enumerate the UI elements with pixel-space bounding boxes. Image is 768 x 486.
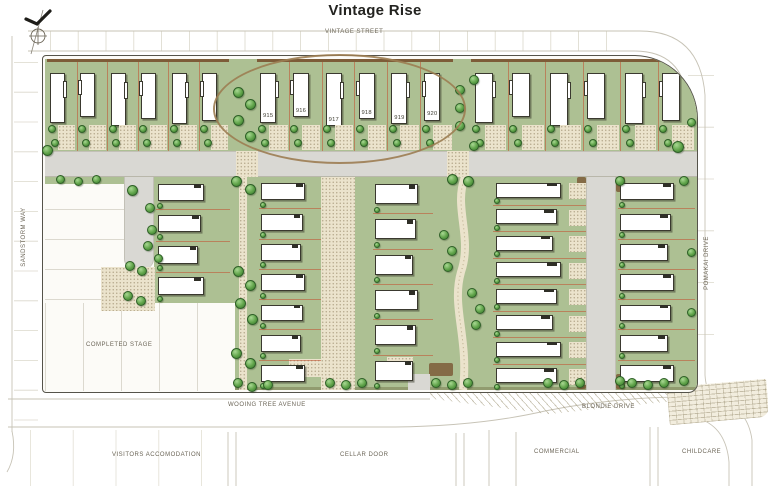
column-east	[618, 179, 695, 390]
tree	[664, 139, 672, 147]
commercial-label: COMMERCIAL	[534, 449, 580, 455]
tree	[157, 265, 163, 271]
house-footprint	[512, 73, 530, 118]
lot	[156, 241, 230, 272]
driveway	[150, 125, 167, 150]
tree	[173, 139, 181, 147]
lot	[156, 272, 230, 303]
lot	[508, 62, 546, 151]
driveway	[119, 125, 136, 150]
tree	[494, 304, 500, 310]
vintage-rise-site-plan: 915916917918919920 Vintage Rise VINTAGE …	[0, 0, 768, 486]
tree	[260, 353, 266, 359]
tree	[143, 139, 151, 147]
tree	[619, 383, 625, 389]
entry-notch	[409, 184, 416, 189]
tree	[619, 262, 625, 268]
lot	[493, 205, 586, 232]
tree	[82, 139, 90, 147]
tree	[204, 139, 212, 147]
driveway	[58, 125, 75, 150]
house-step	[492, 81, 497, 97]
house-footprint	[620, 244, 668, 261]
entry-notch	[294, 305, 300, 309]
entry-notch	[296, 183, 303, 187]
lot	[620, 62, 658, 151]
wooing-tree-avenue-label: WOOING TREE AVENUE	[228, 402, 306, 408]
lot	[493, 231, 586, 258]
tree	[622, 125, 630, 133]
tree	[170, 125, 178, 133]
tree	[200, 125, 208, 133]
blondie-drive-label: BLONDIE DRIVE	[582, 404, 635, 410]
house-footprint	[496, 289, 557, 304]
entry-notch	[544, 368, 554, 371]
entry-notch	[294, 214, 300, 218]
driveway	[569, 342, 586, 358]
house-step	[139, 81, 143, 96]
completed-stage-label: COMPLETED STAGE	[86, 342, 152, 348]
house-footprint	[141, 73, 156, 119]
entry-notch	[192, 215, 199, 219]
entry-notch	[544, 289, 554, 292]
tree	[157, 234, 163, 240]
north-arrow-icon	[22, 6, 58, 56]
driveway	[672, 125, 693, 150]
tree	[514, 139, 522, 147]
house-footprint	[496, 342, 561, 357]
entry-notch	[194, 277, 201, 281]
tree	[112, 139, 120, 147]
house-footprint	[496, 183, 561, 198]
lot	[493, 284, 586, 311]
house-step	[567, 82, 572, 99]
tree	[374, 207, 380, 213]
entry-notch	[409, 290, 416, 295]
entry-notch	[547, 342, 557, 345]
tree	[260, 323, 266, 329]
tree	[509, 125, 517, 133]
column-lane-east	[259, 179, 321, 390]
lot	[618, 239, 695, 269]
house-footprint	[80, 73, 95, 118]
tree	[109, 125, 117, 133]
house-footprint	[261, 244, 301, 261]
tree	[494, 278, 500, 284]
tree	[139, 125, 147, 133]
childcare-label: CHILDCARE	[682, 449, 721, 455]
sandstorm-way-label: SANDSTORM WAY	[21, 207, 27, 266]
lot	[493, 311, 586, 338]
entry-notch	[190, 246, 196, 250]
driveway	[635, 125, 656, 150]
entry-notch	[292, 244, 298, 248]
tree	[619, 232, 625, 238]
entry-notch	[407, 219, 413, 224]
house-footprint	[158, 246, 198, 264]
tree	[260, 202, 266, 208]
house-footprint	[158, 184, 204, 202]
vintage-street-label: VINTAGE STREET	[325, 29, 383, 35]
house-footprint	[375, 219, 416, 239]
tree	[619, 293, 625, 299]
lot	[259, 208, 321, 238]
lot	[138, 62, 169, 151]
tree	[547, 125, 555, 133]
lot	[493, 337, 586, 364]
entry-notch	[296, 365, 303, 369]
tree	[78, 125, 86, 133]
house-footprint	[261, 335, 301, 352]
lot	[77, 62, 108, 151]
house-footprint	[261, 365, 306, 382]
house-footprint	[375, 325, 416, 345]
lot	[373, 319, 433, 354]
lot	[545, 62, 583, 151]
house-footprint	[662, 73, 680, 121]
tree	[374, 348, 380, 354]
house-footprint	[158, 277, 204, 295]
tree	[494, 198, 500, 204]
page-title: Vintage Rise	[287, 2, 463, 19]
tree	[494, 251, 500, 257]
house-footprint	[496, 262, 561, 277]
house-footprint	[111, 73, 126, 126]
lot	[168, 62, 199, 151]
entry-notch	[405, 361, 411, 366]
driveway	[569, 236, 586, 252]
house-footprint	[496, 315, 554, 330]
tree	[619, 202, 625, 208]
entry-notch	[547, 183, 557, 186]
entry-notch	[547, 262, 557, 265]
lot	[373, 249, 433, 284]
tree	[374, 242, 380, 248]
house-footprint	[550, 73, 568, 126]
tree	[374, 383, 380, 389]
entry-notch	[658, 335, 665, 339]
driveway	[89, 125, 106, 150]
house-footprint	[620, 365, 674, 382]
tree	[494, 225, 500, 231]
entry-notch	[405, 255, 411, 260]
lot	[259, 179, 321, 208]
tree	[260, 262, 266, 268]
lot	[618, 208, 695, 238]
house-footprint	[620, 214, 671, 231]
entry-notch	[296, 274, 303, 278]
tree	[374, 277, 380, 283]
house-footprint	[496, 236, 554, 251]
house-footprint	[375, 290, 418, 310]
tree	[619, 353, 625, 359]
pomakai-drive-label: POMAKAI DRIVE	[704, 236, 710, 290]
house-footprint	[375, 255, 413, 275]
entry-notch	[660, 305, 668, 309]
lot	[373, 355, 433, 390]
visitors-accommodation-label: VISITORS ACCOMODATION	[112, 452, 201, 458]
house-footprint	[261, 214, 303, 231]
house-step	[659, 81, 664, 97]
green-lane-path	[239, 177, 247, 390]
pedestrian-crossing	[236, 151, 258, 177]
tree	[589, 139, 597, 147]
park-walkway	[433, 177, 493, 390]
entry-notch	[663, 183, 671, 187]
lot	[493, 258, 586, 285]
lot	[618, 269, 695, 299]
house-footprint	[50, 73, 65, 123]
house-step	[509, 80, 514, 94]
column-park-east	[493, 179, 586, 390]
house-footprint	[475, 73, 493, 123]
cul-de-sac-road	[124, 177, 154, 269]
driveway	[569, 316, 586, 332]
entry-notch	[663, 365, 671, 369]
entry-notch	[292, 335, 298, 339]
tree	[659, 125, 667, 133]
north-south-internal-road	[586, 177, 616, 390]
tree	[626, 139, 634, 147]
house-footprint	[496, 209, 557, 224]
house-footprint	[172, 73, 187, 125]
entry-notch	[541, 236, 550, 239]
house-footprint	[587, 73, 605, 119]
top-block-west	[47, 59, 229, 151]
lot	[618, 299, 695, 329]
lot	[493, 179, 586, 205]
house-footprint	[620, 274, 674, 291]
lot	[373, 179, 433, 213]
driveway	[569, 263, 586, 279]
lot	[618, 360, 695, 390]
top-block-east	[471, 59, 695, 151]
lot	[156, 179, 230, 209]
house-footprint	[261, 183, 306, 200]
tree	[619, 323, 625, 329]
tree	[494, 384, 500, 390]
house-step	[584, 81, 589, 96]
lot	[471, 62, 508, 151]
entry-notch	[541, 315, 550, 318]
driveway	[522, 125, 543, 150]
house-step	[124, 82, 128, 99]
lot	[259, 269, 321, 299]
entry-notch	[658, 244, 665, 248]
driveway	[569, 210, 586, 226]
entry-notch	[544, 209, 554, 212]
lot	[583, 62, 621, 151]
entry-notch	[194, 184, 201, 188]
entry-notch	[660, 214, 668, 218]
house-footprint	[261, 305, 303, 322]
tree	[374, 313, 380, 319]
tree	[494, 331, 500, 337]
lot	[259, 360, 321, 390]
entry-notch	[663, 274, 671, 278]
tree	[584, 125, 592, 133]
tree	[476, 139, 484, 147]
house-step	[642, 82, 647, 99]
lot	[618, 329, 695, 359]
tree	[157, 296, 163, 302]
lot	[373, 284, 433, 319]
house-step	[63, 81, 67, 97]
tree	[494, 357, 500, 363]
entry-notch	[407, 325, 413, 330]
tree	[551, 139, 559, 147]
column-west	[156, 179, 230, 303]
tree	[260, 383, 266, 389]
driveway	[569, 183, 586, 199]
house-footprint	[625, 73, 643, 125]
column-mid	[373, 179, 433, 390]
house-footprint	[375, 184, 418, 204]
lot	[107, 62, 138, 151]
lot	[259, 239, 321, 269]
driveway	[180, 125, 197, 150]
lot	[493, 364, 586, 391]
courtyard-paving	[101, 267, 155, 311]
lot	[259, 299, 321, 329]
driveway	[560, 125, 581, 150]
house-footprint	[620, 335, 668, 352]
house-footprint	[261, 274, 306, 291]
lot	[658, 62, 696, 151]
house-step	[78, 80, 82, 94]
tree	[260, 293, 266, 299]
pedestrian-crossing	[447, 151, 469, 177]
lot	[47, 62, 77, 151]
driveway	[485, 125, 506, 150]
highlight-ellipse	[213, 54, 466, 164]
lot	[259, 329, 321, 359]
driveway	[569, 289, 586, 305]
tree	[472, 125, 480, 133]
lot	[618, 179, 695, 208]
driveway	[597, 125, 618, 150]
tree	[260, 232, 266, 238]
house-footprint	[158, 215, 201, 233]
tree	[51, 139, 59, 147]
lot	[373, 213, 433, 248]
house-footprint	[620, 305, 671, 322]
lot	[156, 209, 230, 240]
tree	[48, 125, 56, 133]
driveway	[569, 369, 586, 385]
cellar-door-label: CELLAR DOOR	[340, 452, 389, 458]
house-footprint	[496, 368, 557, 383]
house-footprint	[620, 183, 674, 200]
house-footprint	[375, 361, 413, 381]
house-step	[200, 81, 204, 97]
house-step	[185, 82, 189, 99]
tree	[157, 203, 163, 209]
